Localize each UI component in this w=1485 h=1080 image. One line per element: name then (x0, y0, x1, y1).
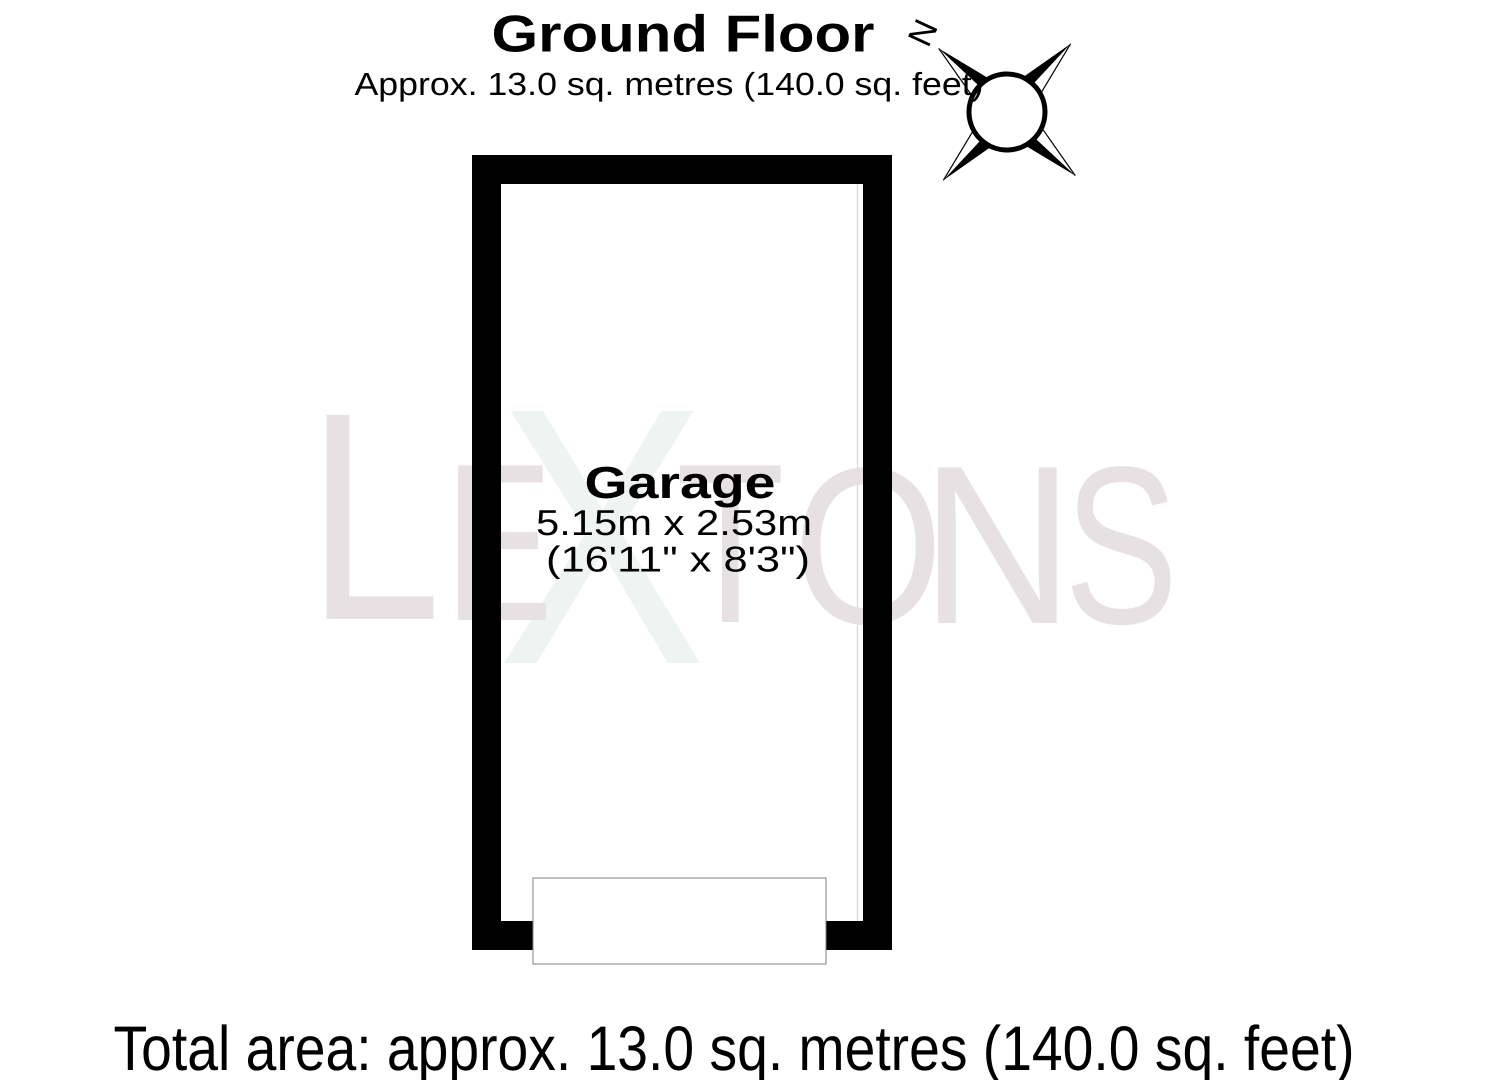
svg-text:Garage: Garage (585, 457, 776, 508)
svg-text:L: L (307, 350, 441, 682)
svg-text:S: S (1064, 420, 1178, 671)
svg-text:N: N (921, 418, 1074, 671)
svg-text:Total area: approx. 13.0 sq. m: Total area: approx. 13.0 sq. metres (140… (114, 1014, 1355, 1080)
svg-text:Ground Floor: Ground Floor (492, 5, 875, 63)
svg-text:(16'11" x 8'3"): (16'11" x 8'3") (546, 539, 810, 580)
svg-text:5.15m x 2.53m: 5.15m x 2.53m (536, 502, 812, 543)
svg-text:Approx. 13.0 sq. metres (140.0: Approx. 13.0 sq. metres (140.0 sq. feet) (355, 66, 984, 102)
